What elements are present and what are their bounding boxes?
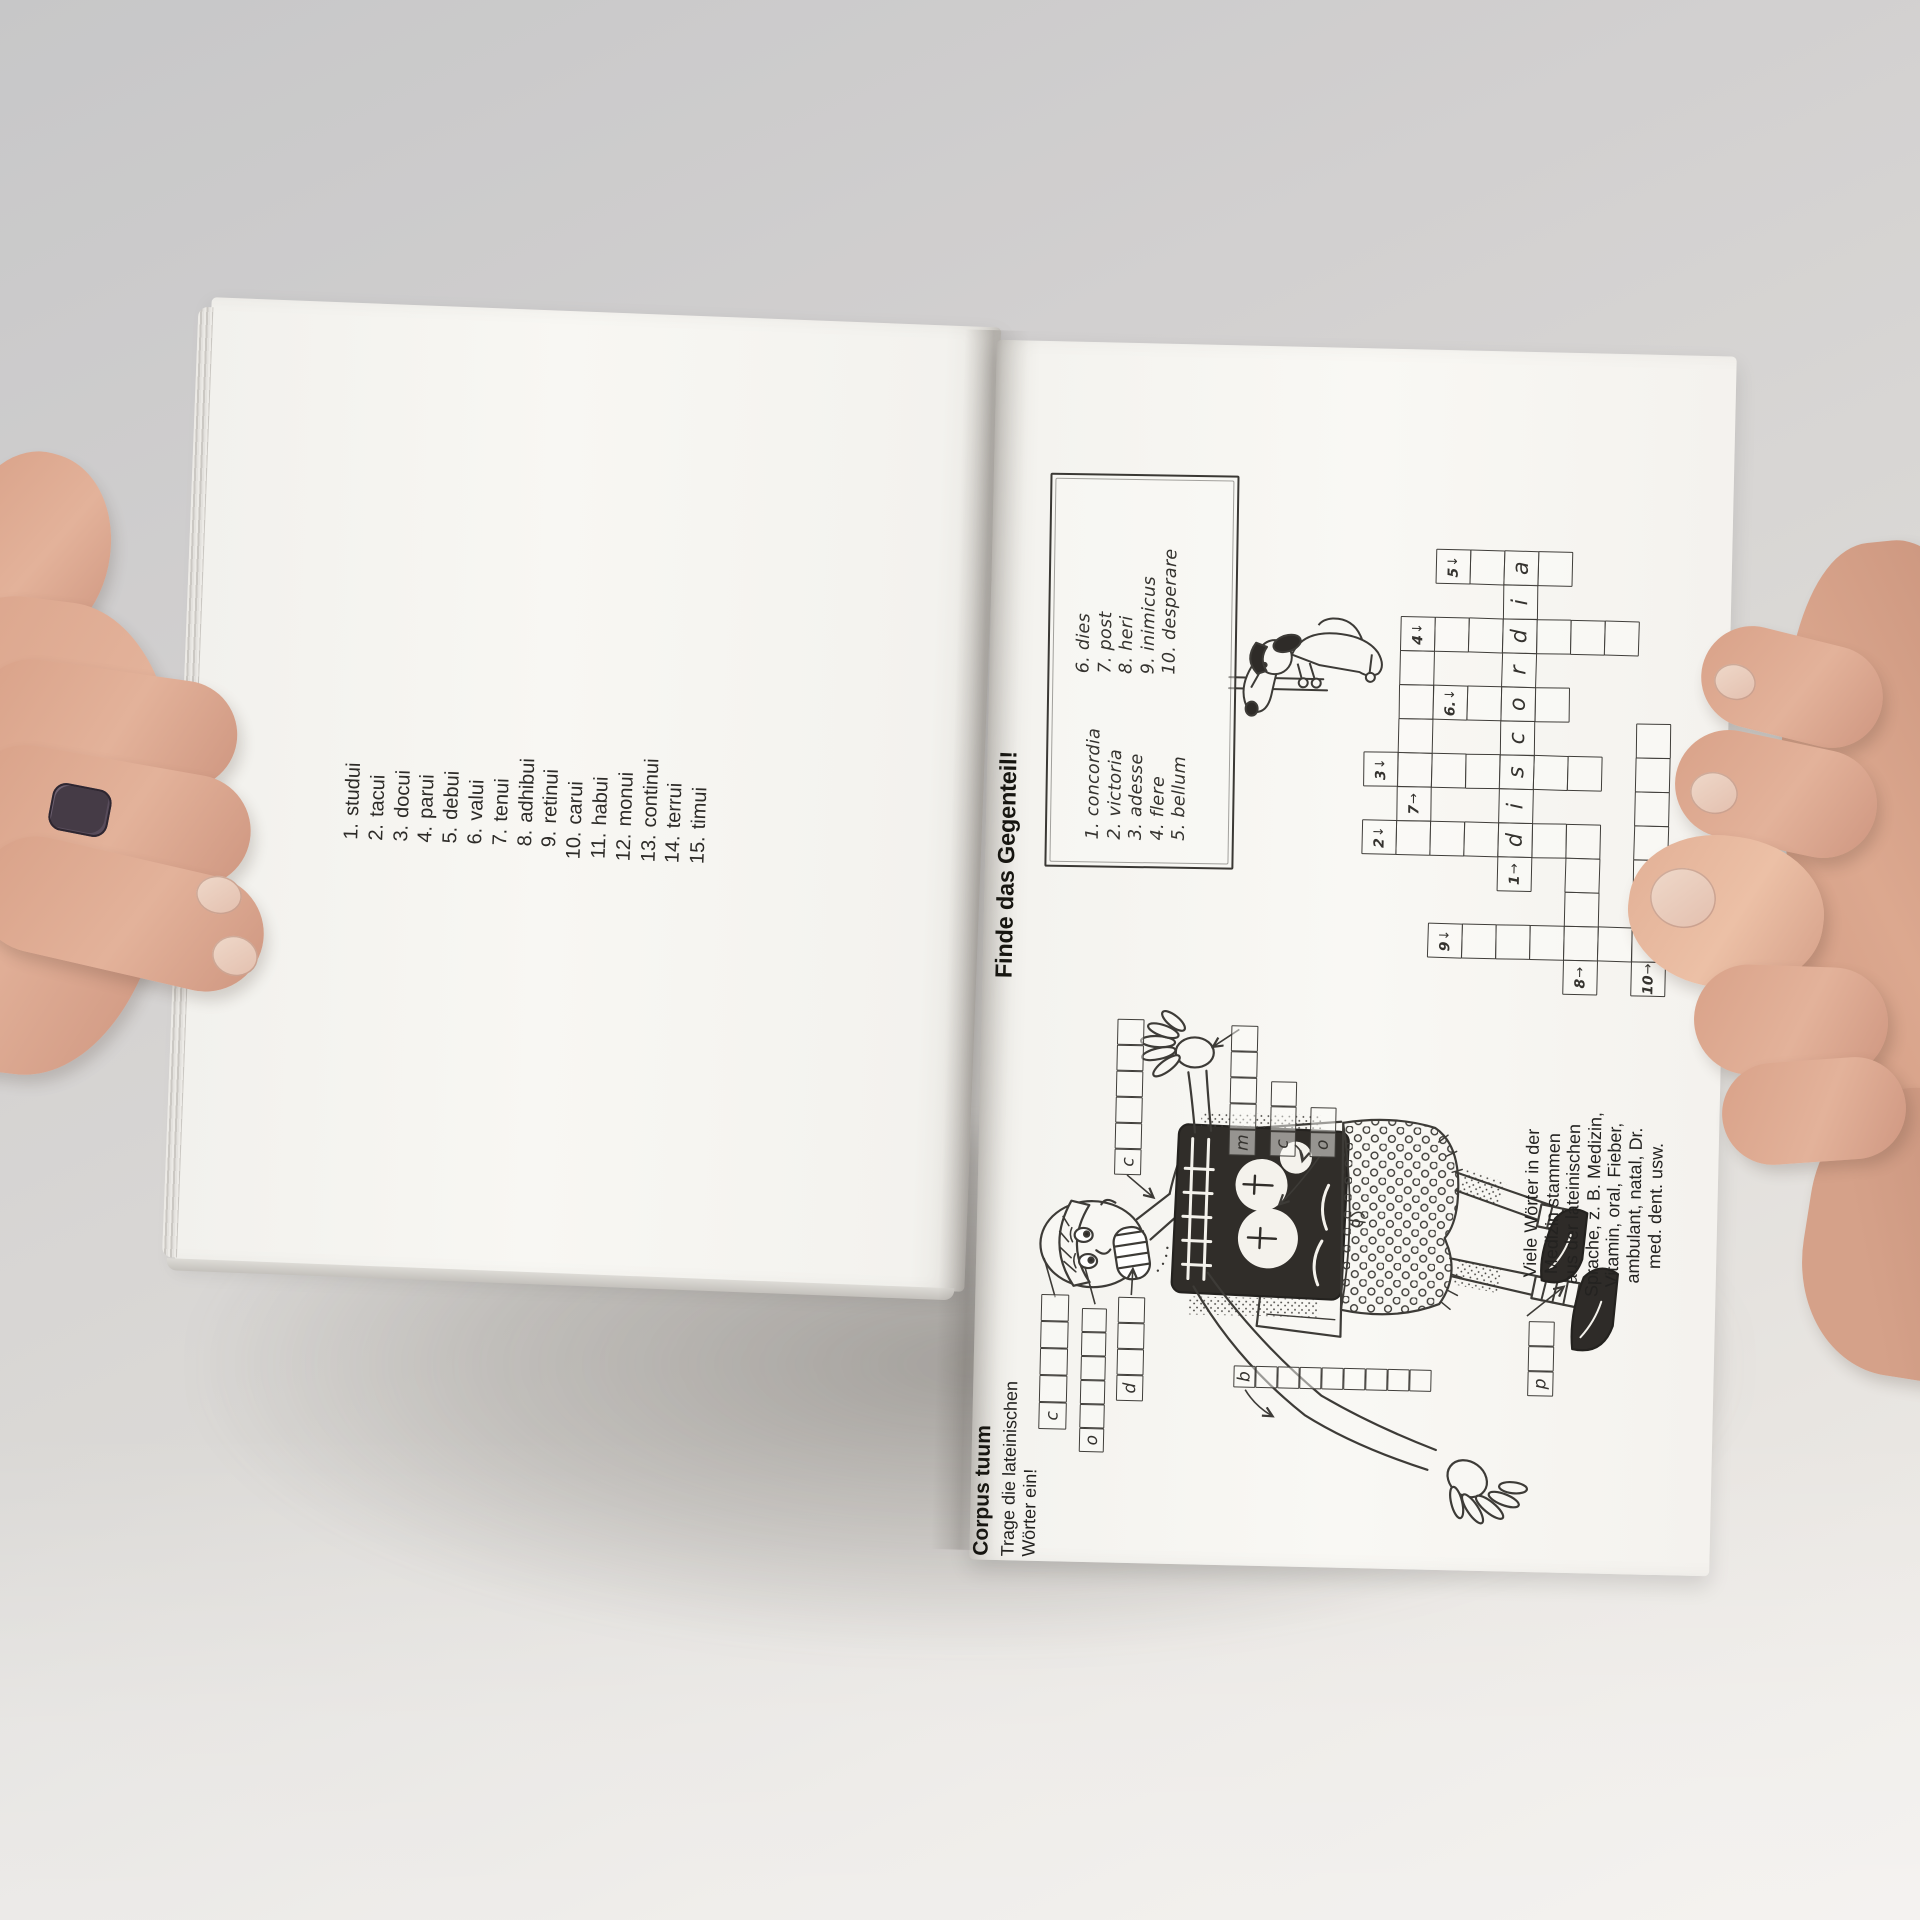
crossword-empty-cell <box>1636 724 1671 759</box>
word-strip-letter: m <box>1232 1134 1252 1151</box>
word-strip-cell <box>1079 1404 1105 1429</box>
medizin-note: Viele Wörter in derMedizin stammenaus de… <box>1518 1067 1668 1342</box>
word-strip-cell: c <box>1269 1131 1296 1157</box>
crossword-clue-number-cell: 8→ <box>1562 960 1598 996</box>
list-item-number: 5. <box>438 826 464 857</box>
word-strip-cell <box>1271 1081 1298 1107</box>
crossword-empty-cell <box>1570 620 1606 656</box>
list-item-number: 10. <box>562 831 588 862</box>
word-strip-cell <box>1116 1071 1144 1098</box>
crossword-letter-cell: r <box>1501 652 1537 688</box>
crossword-clue-number: 8→ <box>1572 967 1588 989</box>
crossword-empty-cell <box>1395 820 1431 856</box>
word-strip-cell <box>1409 1369 1431 1391</box>
sign-words-right: 6. dies7. post8. heri9. inimicus10. desp… <box>1073 547 1182 675</box>
clue-arrow-icon: ↓ <box>1446 556 1461 567</box>
list-item-number: 7. <box>487 828 513 859</box>
crossword-letter-cell: i <box>1498 788 1534 824</box>
word-strip-cell <box>1116 1045 1144 1072</box>
word-strip-cell: m <box>1228 1129 1256 1156</box>
crossword-letter: i <box>1503 803 1528 810</box>
crossword-empty-cell <box>1597 926 1633 962</box>
crossword-clue-number: 4↓ <box>1410 623 1426 645</box>
crossword-letter: s <box>1504 766 1529 778</box>
list-item-word: timui <box>687 787 713 830</box>
crossword-clue-number-cell: 5↓ <box>1436 549 1472 585</box>
crossword-empty-cell <box>1399 650 1435 686</box>
crossword-clue-number-cell: 1→ <box>1497 856 1533 892</box>
word-strip-cell <box>1528 1346 1555 1372</box>
crossword-clue-number-cell: 9↓ <box>1427 923 1463 959</box>
word-strip-cell <box>1299 1367 1321 1389</box>
crossword-empty-cell <box>1468 617 1504 653</box>
clue-number: 5 <box>1445 568 1461 578</box>
list-item-number: 15. <box>685 836 711 867</box>
sign-word: 10. desperare <box>1159 548 1182 674</box>
crossword-empty-cell <box>1398 718 1434 754</box>
sign-word: 1. concordia <box>1083 728 1106 840</box>
word-strip-cell: c <box>1114 1149 1142 1176</box>
word-strip-cell <box>1039 1375 1068 1403</box>
clue-number: 3 <box>1373 770 1389 780</box>
word-strip-letter: c <box>1118 1157 1138 1167</box>
crossword-empty-cell <box>1604 620 1640 656</box>
sign-word: 9. inimicus <box>1138 548 1161 674</box>
crossword-empty-cell <box>1434 617 1470 653</box>
crossword-letter: o <box>1506 697 1531 711</box>
word-strip-cell: c <box>1038 1402 1067 1430</box>
crossword-empty-cell <box>1531 823 1566 858</box>
word-strip-letter: o <box>1081 1435 1101 1446</box>
word-strip-cell: b <box>1233 1365 1255 1387</box>
word-strip-letter: p <box>1530 1378 1550 1389</box>
crossword-letter-cell: d <box>1502 618 1538 654</box>
list-item-number: 8. <box>512 829 538 860</box>
clue-number: 8 <box>1572 979 1588 989</box>
list-item-word: habui <box>588 776 615 826</box>
sign-words-left: 1. concordia2. victoria3. adesse4. flere… <box>1083 728 1192 841</box>
clue-number: 7 <box>1406 805 1422 815</box>
list-item-word: docui <box>390 770 417 819</box>
list-item-number: 14. <box>661 835 687 866</box>
word-strip-cell <box>1118 1297 1146 1324</box>
latin-perfect-list: 1.studui2.tacui3.docui4.parui5.debui6.va… <box>339 703 716 867</box>
crossword-letter: r <box>1506 665 1531 675</box>
word-strip-cell <box>1080 1356 1106 1381</box>
crossword-empty-cell <box>1529 925 1565 961</box>
crossword-letter: c <box>1505 732 1530 744</box>
word-strip-cell: o <box>1309 1132 1336 1158</box>
sign-word: 8. heri <box>1116 548 1139 674</box>
crossword-clue-number: 2↓ <box>1371 826 1387 848</box>
list-item-word: monui <box>613 772 640 827</box>
list-item-word: tenui <box>489 778 515 822</box>
list-item-word: valui <box>464 779 490 821</box>
list-item-number: 9. <box>537 830 563 861</box>
crossword-clue-number-cell: 2↓ <box>1361 819 1397 855</box>
crossword-empty-cell <box>1463 821 1499 857</box>
crossword-letter: a <box>1509 561 1534 575</box>
crossword-empty-cell <box>1469 549 1505 585</box>
word-strip-cell <box>1039 1348 1068 1376</box>
word-strip-cell <box>1277 1366 1299 1388</box>
crossword-empty-cell <box>1466 686 1502 722</box>
crossword-empty-cell <box>1635 757 1671 793</box>
word-strip-cell <box>1365 1368 1387 1390</box>
word-strip-cell: o <box>1079 1428 1105 1453</box>
word-strip-cell <box>1231 1025 1259 1052</box>
crossword-empty-cell <box>1563 926 1599 962</box>
list-item-word: tacui <box>365 774 391 817</box>
crossword-empty-cell <box>1461 923 1497 959</box>
list-item-word: adhibui <box>513 758 540 823</box>
right-hand-finger <box>1719 1054 1910 1169</box>
list-item-number: 6. <box>462 827 488 858</box>
crossword-empty-cell <box>1536 619 1571 654</box>
crossword-clue-number: 9↓ <box>1437 930 1454 952</box>
word-strip-letter: o <box>1313 1139 1333 1150</box>
photo-scene: 1.studui2.tacui3.docui4.parui5.debui6.va… <box>0 0 1920 1920</box>
list-item-word: carui <box>563 781 589 825</box>
list-item-word: studui <box>340 762 367 816</box>
crossword-letter: i <box>1508 599 1533 605</box>
list-item-number: 2. <box>363 823 389 854</box>
left-page: 1.studui2.tacui3.docui4.parui5.debui6.va… <box>175 297 1001 1292</box>
sign-word: 3. adesse <box>1126 728 1149 840</box>
word-strip-cell <box>1528 1321 1555 1347</box>
clue-number: 1 <box>1506 875 1522 885</box>
list-item-number: 11. <box>586 832 612 863</box>
clue-arrow-icon: ↓ <box>1437 930 1452 941</box>
dog-illustration <box>1243 616 1383 718</box>
crossword-clue-number: 10→ <box>1640 963 1657 995</box>
clue-arrow-icon: → <box>1507 863 1522 874</box>
clue-number: 2 <box>1371 838 1387 848</box>
word-strip-cell <box>1387 1369 1409 1391</box>
crossword-letter-cell: s <box>1499 754 1535 790</box>
word-strip-letter: d <box>1120 1382 1140 1393</box>
crossword-empty-cell <box>1431 753 1467 789</box>
word-strip-letter: c <box>1042 1411 1062 1421</box>
crossword-clue-number: 1→ <box>1506 863 1522 885</box>
word-strip-cell: p <box>1527 1371 1554 1397</box>
word-sign-box: 1. concordia2. victoria3. adesse4. flere… <box>1044 473 1239 870</box>
crossword-letter-cell: i <box>1503 584 1538 619</box>
clue-number: 6. <box>1442 701 1458 717</box>
word-strip-cell <box>1229 1103 1257 1130</box>
list-item-number: 12. <box>611 833 637 864</box>
list-item: 15.timui <box>685 716 716 867</box>
sign-word: 4. flere <box>1147 729 1170 841</box>
crossword-empty-cell <box>1495 924 1530 959</box>
crossword-empty-cell <box>1564 858 1600 894</box>
crossword-clue-number-cell: 7→ <box>1396 786 1431 821</box>
word-strip-cell <box>1116 1349 1144 1376</box>
crossword-empty-cell <box>1565 824 1601 860</box>
word-strip-cell <box>1230 1077 1258 1104</box>
word-strip-letter: b <box>1234 1371 1254 1382</box>
crossword-empty-cell <box>1535 687 1570 722</box>
clue-arrow-icon: ↓ <box>1372 826 1387 837</box>
crossword-clue-number-cell: 3↓ <box>1363 751 1398 786</box>
crossword-letter: d <box>1503 833 1528 848</box>
word-strip-cell <box>1310 1107 1337 1133</box>
sign-word: 7. post <box>1095 547 1118 673</box>
sign-word: 2. victoria <box>1104 728 1127 840</box>
clue-number: 9 <box>1437 941 1453 951</box>
right-page: Finde das Gegenteil! 1. concordia2. vict… <box>969 340 1736 1576</box>
crossword-letter-cell: d <box>1497 822 1533 858</box>
crossword-clue-number: 6.↓ <box>1442 689 1459 716</box>
corpus-heading: Corpus tuum <box>969 1425 996 1556</box>
clue-arrow-icon: → <box>1641 963 1656 974</box>
clue-arrow-icon: ↓ <box>1373 758 1388 769</box>
crossword-letter-cell: c <box>1500 720 1535 755</box>
list-item-number: 13. <box>636 834 662 865</box>
list-item-number: 4. <box>413 825 439 856</box>
crossword-empty-cell <box>1429 821 1465 857</box>
list-item-word: terrui <box>662 782 689 828</box>
crossword-clue-number: 5↓ <box>1445 556 1461 578</box>
clue-number: 10 <box>1640 975 1656 995</box>
word-strip-cell <box>1230 1051 1258 1078</box>
clue-arrow-icon: ↓ <box>1410 623 1425 634</box>
corpus-subtitle: Trage die lateinischenWörter ein! <box>997 1381 1043 1557</box>
clue-number: 4 <box>1410 635 1426 645</box>
word-strip-letter: c <box>1273 1139 1293 1149</box>
word-strip-cell <box>1321 1367 1343 1389</box>
sign-word: 5. bellum <box>1169 729 1192 841</box>
crossword-empty-cell <box>1567 756 1603 792</box>
crossword-letter-cell: a <box>1503 550 1539 586</box>
list-item-word: retinui <box>538 769 565 824</box>
list-item-word: debui <box>439 770 466 820</box>
crossword-clue-number-cell: 6.↓ <box>1432 685 1468 721</box>
word-strip-cell <box>1080 1380 1106 1405</box>
list-item-number: 1. <box>339 822 365 853</box>
word-strip-cell <box>1117 1323 1145 1350</box>
crossword-empty-cell <box>1397 752 1433 788</box>
crossword-empty-cell <box>1564 892 1600 928</box>
word-strip-cell <box>1041 1294 1070 1322</box>
list-item-word: continui <box>637 758 664 828</box>
word-strip-cell <box>1081 1308 1107 1333</box>
clue-arrow-icon: ↓ <box>1443 689 1458 700</box>
gegenteil-heading: Finde das Gegenteil! <box>990 751 1022 979</box>
crossword-clue-number: 7→ <box>1406 793 1422 815</box>
word-strip-cell <box>1115 1097 1143 1124</box>
word-strip-cell: d <box>1116 1375 1144 1402</box>
clue-arrow-icon: → <box>1573 967 1588 978</box>
list-item-word: parui <box>414 774 440 819</box>
word-strip-cell <box>1117 1019 1145 1046</box>
crossword-empty-cell <box>1533 755 1569 791</box>
word-strip-cell <box>1255 1366 1277 1388</box>
crossword-letter: d <box>1507 629 1532 644</box>
crossword-empty-cell <box>1399 684 1434 719</box>
word-strip-cell <box>1081 1332 1107 1357</box>
word-strip-cell <box>1040 1321 1069 1349</box>
sign-word: 6. dies <box>1073 547 1096 673</box>
crossword-letter-cell: o <box>1500 686 1536 722</box>
crossword-empty-cell <box>1465 754 1500 789</box>
crossword-empty-cell <box>1634 791 1670 827</box>
word-strip-cell <box>1270 1106 1297 1132</box>
clue-arrow-icon: → <box>1407 793 1422 804</box>
word-strip-cell <box>1115 1123 1143 1150</box>
crossword-clue-number: 3↓ <box>1373 758 1389 780</box>
crossword-clue-number-cell: 4↓ <box>1400 616 1436 652</box>
list-item-number: 3. <box>388 824 414 855</box>
crossword-empty-cell <box>1537 551 1573 587</box>
word-strip-cell <box>1343 1368 1365 1390</box>
